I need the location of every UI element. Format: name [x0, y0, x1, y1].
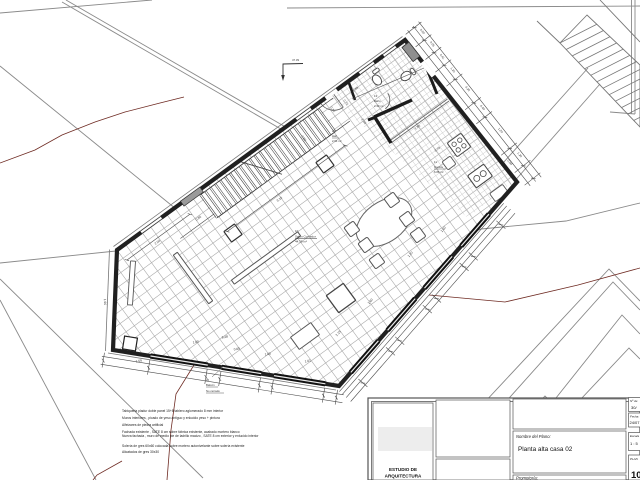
svg-text:20: 20: [206, 378, 210, 382]
svg-text:1.90: 1.90: [103, 299, 107, 306]
svg-text:Hall: Hall: [332, 134, 337, 138]
svg-text:Escala: Escala: [630, 434, 639, 438]
svg-text:Fecha:: Fecha:: [630, 415, 639, 419]
svg-text:47.39: 47.39: [292, 58, 299, 62]
svg-text:2.40 m²: 2.40 m²: [374, 104, 384, 108]
svg-text:1 : 5: 1 : 5: [630, 441, 639, 446]
svg-text:Promotor/a:: Promotor/a:: [516, 476, 538, 480]
svg-text:24/07: 24/07: [630, 420, 640, 425]
svg-text:Solería de gres 60x60 colocada: Solería de gres 60x60 colocada sobre mor…: [122, 444, 245, 448]
svg-text:30/: 30/: [631, 405, 637, 410]
svg-text:Nombre del Plano:: Nombre del Plano:: [516, 434, 551, 439]
svg-text:Nueva fachada , muro de medio: Nueva fachada , muro de medio pie de lad…: [122, 434, 259, 438]
svg-text:PLAN: PLAN: [630, 457, 639, 461]
svg-text:Nº de: Nº de: [630, 399, 638, 403]
svg-text:Cocina: Cocina: [434, 165, 443, 169]
svg-text:Balcón: Balcón: [206, 383, 215, 387]
svg-text:Muros interiores , picado de y: Muros interiores , picado de yeso antigu…: [122, 416, 220, 420]
svg-text:44.39 m²: 44.39 m²: [295, 240, 307, 244]
svg-text:10: 10: [295, 229, 299, 233]
svg-text:11: 11: [434, 160, 437, 164]
svg-text:10: 10: [631, 470, 640, 480]
svg-text:Alfeizares de piedra artificia: Alfeizares de piedra artificial: [122, 423, 163, 427]
svg-text:Alicatados de gres 30x30: Alicatados de gres 30x30: [122, 450, 159, 454]
svg-text:No cerrado: No cerrado: [206, 389, 220, 393]
svg-text:ESTUDIO DE: ESTUDIO DE: [389, 467, 417, 472]
svg-text:Planta alta casa 02: Planta alta casa 02: [518, 446, 573, 453]
svg-text:Salón Comedor: Salón Comedor: [295, 235, 316, 239]
svg-text:Baño: Baño: [374, 99, 381, 103]
svg-text:13: 13: [374, 94, 378, 98]
svg-text:Tabiqueria pladur doble panel: Tabiqueria pladur doble panel 15+8 table…: [122, 409, 224, 413]
svg-text:ARQUITECTURA: ARQUITECTURA: [385, 474, 422, 479]
svg-text:6.86 m²: 6.86 m²: [434, 170, 444, 174]
svg-text:2.61 m²: 2.61 m²: [332, 139, 342, 143]
svg-text:20: 20: [332, 129, 336, 133]
